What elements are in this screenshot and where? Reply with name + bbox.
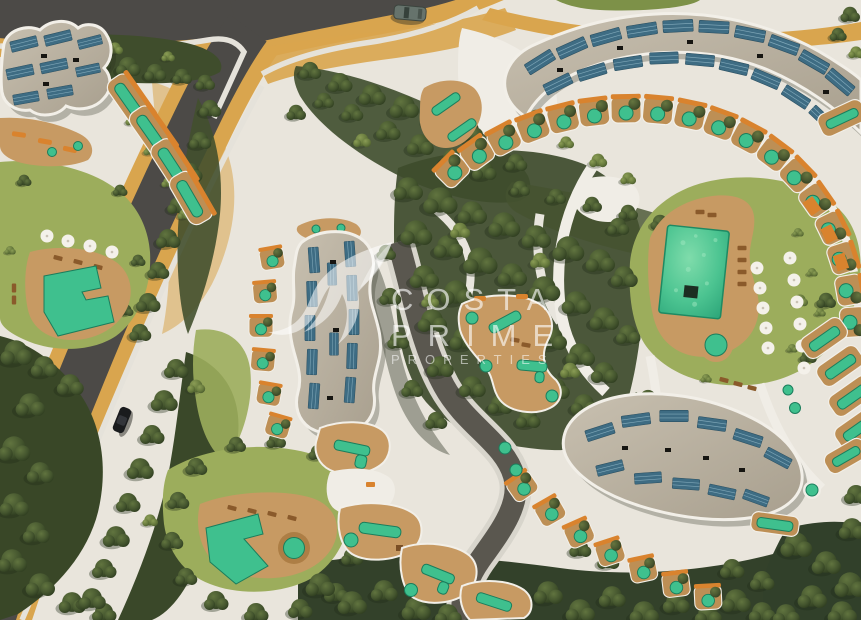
- site-plan-scene: COSTA PRIME PROPERTIES: [0, 0, 861, 620]
- round-pool: [284, 538, 305, 559]
- watermark-line-1: COSTA: [391, 282, 561, 317]
- watermark-line-3: PROPERTIES: [391, 352, 555, 367]
- aerial-resort-site-render: COSTA PRIME PROPERTIES: [0, 0, 861, 620]
- watermark-line-2: PRIME: [391, 318, 569, 353]
- kids-round-pool: [705, 334, 727, 356]
